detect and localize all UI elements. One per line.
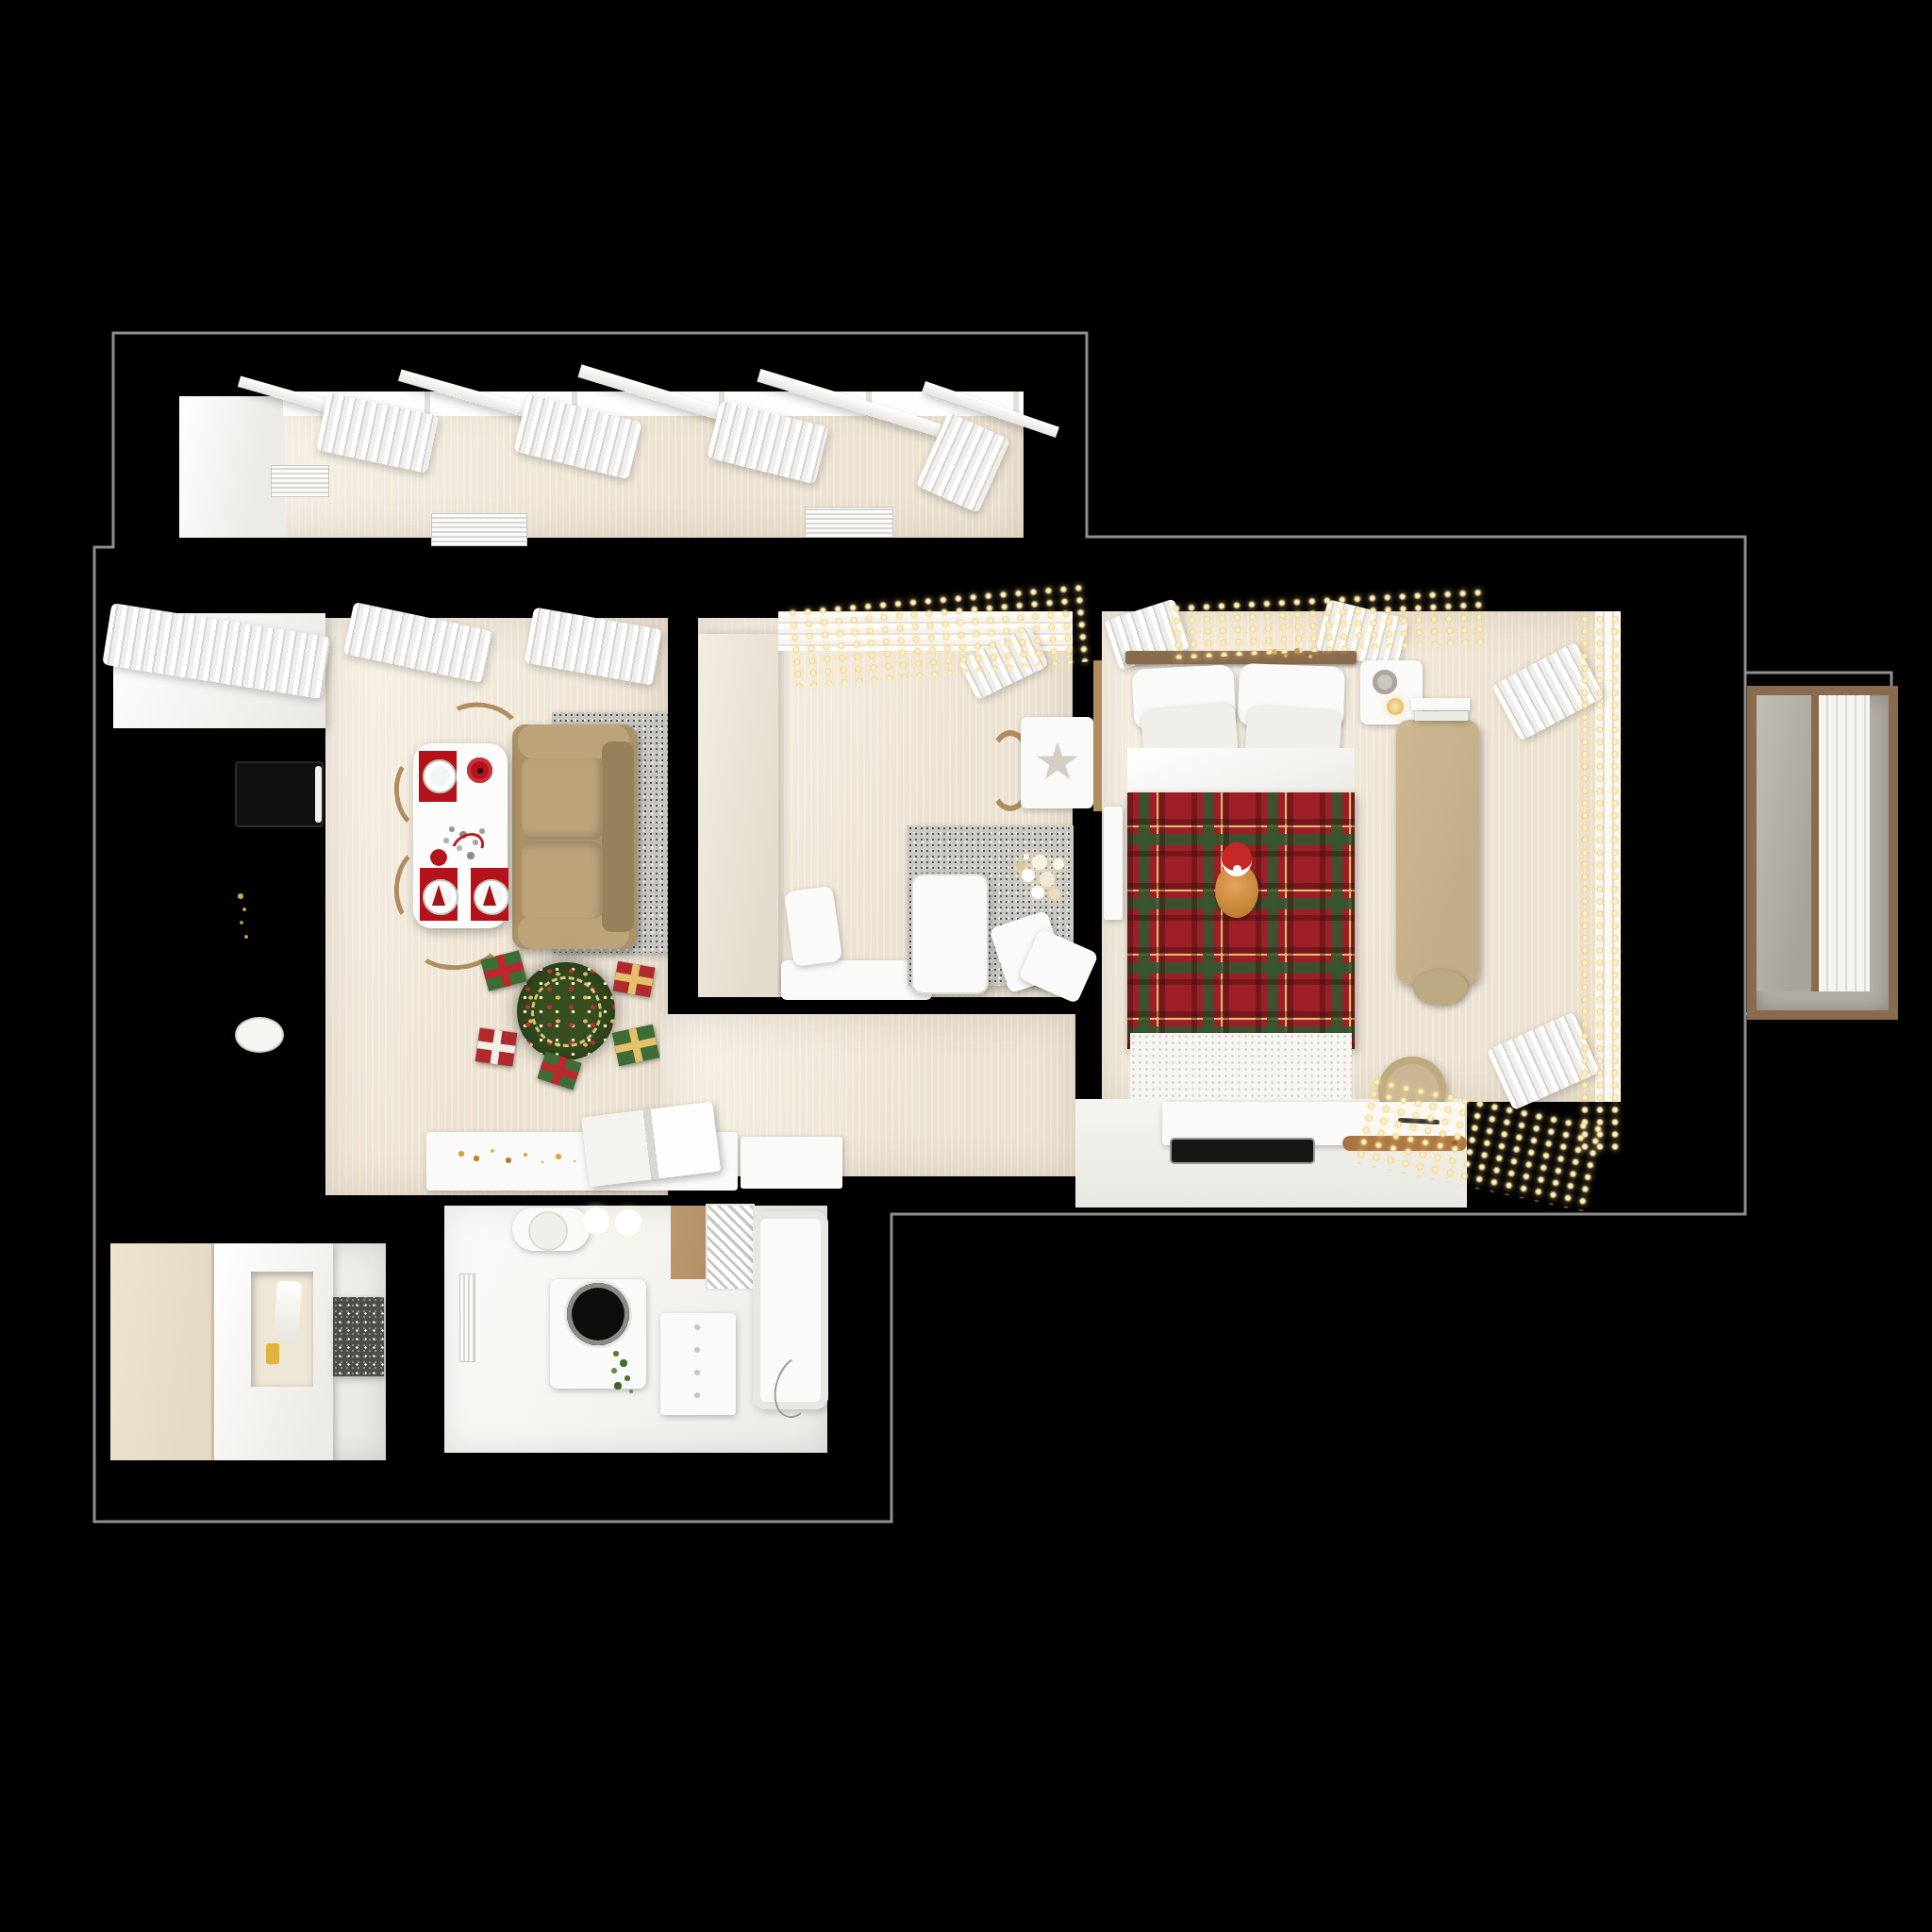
bathroom-radiator (459, 1274, 475, 1362)
hanging-coat (274, 1280, 301, 1343)
towel-radiator (706, 1204, 755, 1291)
wall-lamp (583, 1207, 609, 1234)
oven-handle (315, 766, 322, 823)
doormat (333, 1297, 384, 1376)
centerpiece (449, 826, 455, 832)
play-mat (911, 874, 989, 994)
slat-wall (1819, 695, 1870, 991)
tartan-duvet (1127, 792, 1355, 1049)
dining-table (413, 743, 508, 928)
sofa (512, 724, 637, 949)
ribbon-garnish (446, 827, 489, 867)
speaker (1373, 670, 1397, 694)
bedside-bench (1396, 720, 1479, 984)
gift-box (613, 961, 656, 997)
gold-garland (1272, 649, 1277, 655)
radiator (805, 507, 893, 538)
toy-box (1021, 717, 1093, 808)
gold-utensils (238, 893, 243, 899)
balcony-side-wall (179, 396, 285, 538)
star-icon (1036, 741, 1079, 783)
balcony-floor-wood (1757, 695, 1811, 991)
nursery-wardrobe (698, 634, 778, 997)
candle (1387, 698, 1404, 715)
pompom-garland (1024, 854, 1029, 859)
sofa-backrest (602, 741, 634, 932)
bed (1125, 637, 1357, 1099)
santa-hat-pom (1233, 865, 1241, 874)
cat-in-santa-hat (1209, 842, 1264, 920)
gingerbread-cookies (458, 1151, 464, 1157)
radiator (271, 465, 329, 497)
knit-throw (1130, 1033, 1352, 1099)
tree-garland (522, 967, 610, 1056)
fairy-lights (1577, 613, 1621, 1151)
books (1411, 698, 1470, 710)
side-balcony (1747, 686, 1898, 1020)
entry-cabinet (110, 1243, 214, 1460)
sofa-cushion (522, 841, 603, 919)
red-bowl-center (477, 768, 483, 774)
toilet-lid (528, 1211, 568, 1251)
books (1415, 711, 1468, 721)
christmas-tree (517, 962, 615, 1060)
balcony-divider (1811, 695, 1819, 991)
cooktop (235, 761, 324, 827)
nightstand (1360, 660, 1423, 724)
radiator (431, 513, 527, 546)
kitchen-sink (235, 1017, 284, 1053)
floor-plan-stage (0, 0, 1932, 1932)
throw-pillow (784, 886, 843, 967)
yellow-bag (266, 1343, 279, 1364)
gift-box (475, 1027, 518, 1066)
wall-lamp (615, 1209, 641, 1236)
red-mini-bowl (430, 849, 447, 866)
bench-end-cushion (1413, 970, 1468, 1006)
dinner-plate (423, 759, 457, 793)
sideboard (741, 1137, 842, 1189)
sofa-cushion (522, 758, 603, 840)
washer-drum (567, 1283, 629, 1345)
bedside-board (1104, 807, 1123, 920)
drawer-knobs (694, 1324, 700, 1330)
plant (613, 1351, 619, 1357)
tablet (1170, 1138, 1315, 1164)
